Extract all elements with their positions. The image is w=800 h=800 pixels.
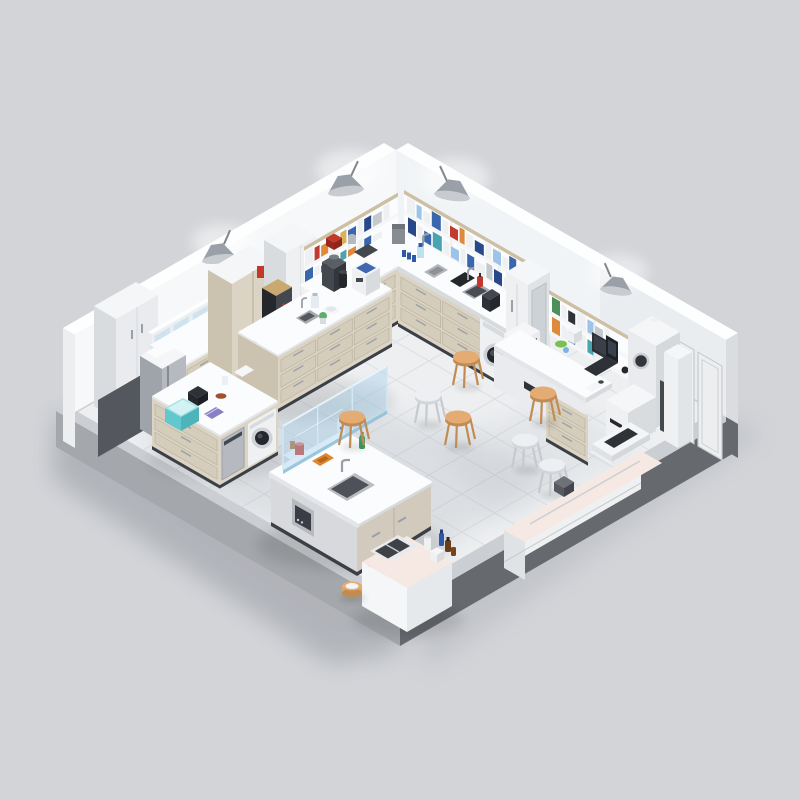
mouse	[598, 380, 604, 384]
incubator-port	[634, 354, 648, 368]
lab-room-render	[0, 0, 800, 800]
right-wall-pilaster	[660, 344, 692, 448]
green-bowl	[555, 341, 567, 348]
fire-extinguisher	[477, 276, 483, 287]
cup	[622, 367, 629, 374]
stool-seat	[512, 434, 538, 447]
stool-seat	[539, 459, 565, 472]
right-wall-outer-plinth	[726, 417, 738, 458]
right-wall-outer	[726, 333, 738, 424]
book	[460, 227, 465, 245]
stool-seat	[445, 411, 471, 424]
left-wall-end-post	[63, 328, 75, 448]
stool-seat	[339, 411, 365, 424]
stool-seat	[453, 351, 479, 364]
stool-seat	[415, 389, 441, 402]
book	[461, 248, 466, 266]
stool-seat	[530, 387, 556, 400]
book	[358, 218, 363, 236]
